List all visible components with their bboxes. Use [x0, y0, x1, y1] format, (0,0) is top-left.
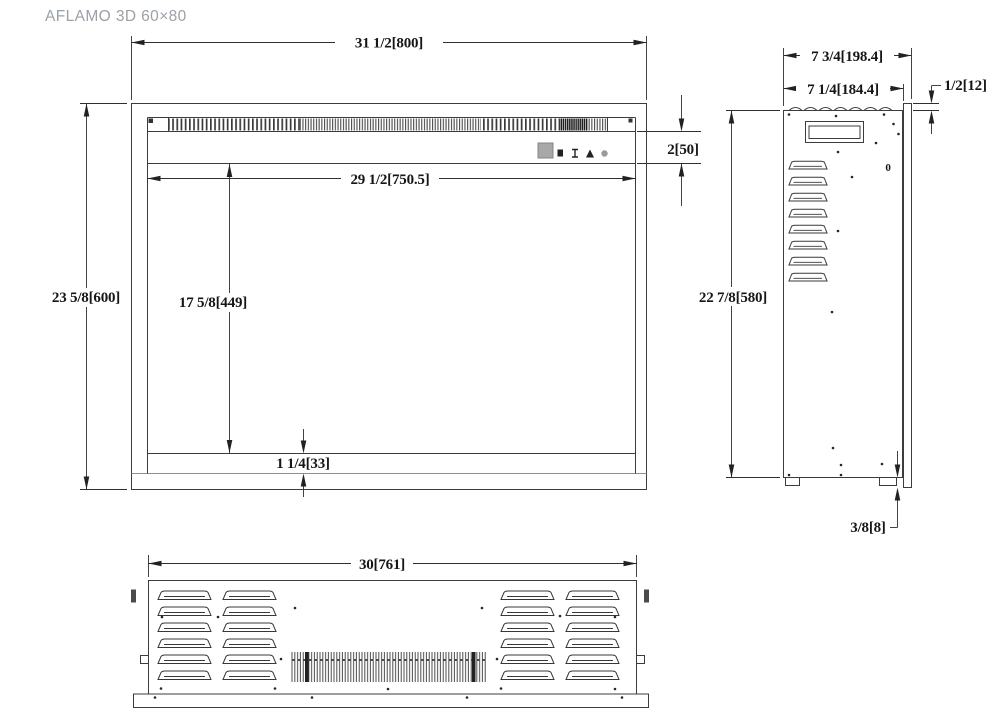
dimmer-button-icon [601, 150, 607, 156]
heat-button-icon [572, 150, 578, 158]
dim-label-control-band: 2[50] [667, 142, 699, 158]
bottom-dimensions: 30[761] [149, 554, 637, 577]
dim-label-front-height: 23 5/8[600] [52, 290, 120, 306]
dim-label-opening-height: 17 5/8[449] [179, 295, 247, 311]
dim-opening-width: 29 1/2[750.5] [148, 170, 636, 189]
dim-label-body-depth: 7 1/4[184.4] [807, 82, 879, 98]
side-view: 0 [784, 104, 912, 488]
bottom-louvers-left [158, 591, 276, 680]
zero-mark: 0 [885, 162, 891, 174]
dim-label-overall-depth: 7 3/4[198.4] [811, 49, 883, 65]
bottom-front-plate [134, 694, 649, 708]
dim-bottom-width: 30[761] [149, 554, 637, 577]
bottom-side-tab-right [644, 590, 649, 603]
top-vent-grille [149, 118, 633, 132]
dim-label-opening-width: 29 1/2[750.5] [350, 172, 429, 188]
dim-label-side-height: 22 7/8[580] [699, 290, 767, 306]
control-panel [538, 143, 608, 158]
side-foot-left [786, 478, 800, 486]
dim-bottom-flange: 3/8[8] [850, 451, 900, 536]
dim-label-bottom-lip: 1 1/4[33] [276, 456, 330, 472]
bottom-louvers-right [501, 591, 619, 680]
side-front-flange [904, 104, 912, 488]
junction-box [806, 122, 864, 143]
dim-label-front-flange: 1/2[12] [944, 78, 987, 94]
dim-bottom-lip: 1 1/4[33] [276, 429, 330, 497]
dim-opening-height: 17 5/8[449] [169, 164, 257, 453]
display-icon [538, 143, 553, 158]
technical-drawing: AFLAMO 3D 60×80 [0, 0, 1000, 725]
dim-front-overall-width: 31 1/2[800] [132, 33, 647, 100]
dim-side-height: 22 7/8[580] [691, 111, 780, 478]
dim-label-bottom-flange: 3/8[8] [850, 520, 885, 536]
bottom-notch-right [637, 656, 645, 664]
power-button-icon [558, 150, 564, 157]
dim-label-front-width: 31 1/2[800] [355, 36, 423, 52]
bottom-center-grille [290, 652, 487, 682]
side-foot-right [880, 478, 897, 486]
bottom-notch-left [141, 656, 149, 664]
side-dimensions: 7 3/4[198.4] 7 1/4[184.4] 1/2[12] [691, 46, 987, 536]
side-louvers [789, 161, 827, 281]
dim-front-overall-height: 23 5/8[600] [44, 104, 128, 490]
dim-body-depth: 7 1/4[184.4] [784, 79, 904, 101]
flame-button-icon [586, 150, 594, 158]
dim-label-bottom-width: 30[761] [359, 557, 405, 573]
bottom-side-tab-left [131, 590, 136, 603]
grille-end-mark-right [629, 119, 633, 123]
front-dimensions: 31 1/2[800] 23 5/8[600] 29 1/2[750.5] [44, 33, 701, 497]
bottom-view [131, 581, 649, 708]
grille-end-mark-left [149, 119, 154, 124]
dim-front-flange-depth: 1/2[12] [913, 78, 987, 134]
